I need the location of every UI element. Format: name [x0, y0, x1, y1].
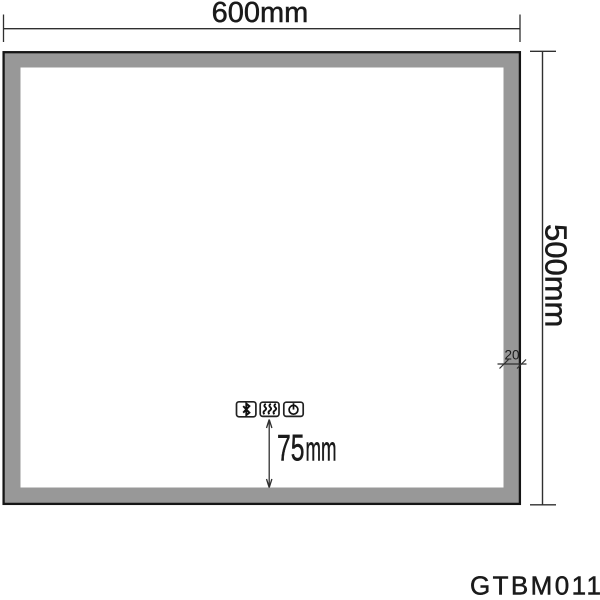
- svg-text:500mm: 500mm: [539, 224, 574, 327]
- svg-text:mm: mm: [306, 431, 337, 469]
- svg-text:GTBM011: GTBM011: [470, 571, 600, 600]
- svg-text:600mm: 600mm: [212, 0, 309, 29]
- svg-text:20: 20: [504, 348, 519, 363]
- svg-text:75: 75: [277, 428, 305, 469]
